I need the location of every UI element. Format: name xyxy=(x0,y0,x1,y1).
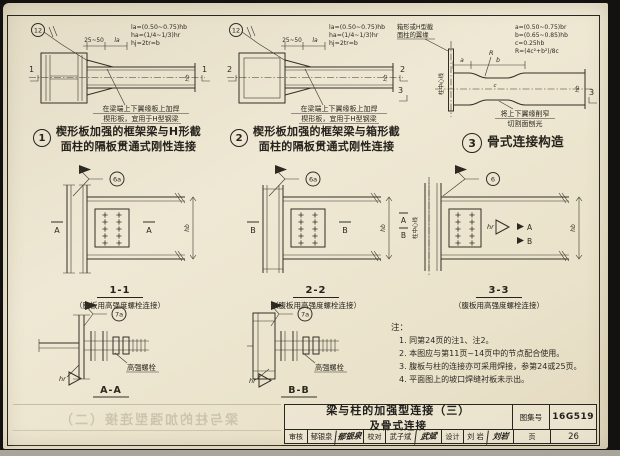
note-line-2: 切割面刨光 xyxy=(508,119,543,128)
cut-mark-a: A xyxy=(527,223,533,232)
formula-3: hj=2tr=b xyxy=(131,40,160,47)
flange-label-2: 面柱的翼缘 xyxy=(397,30,429,39)
formulas: la=(0.50~0.75)hb ha=(1/4~1/3)hr hj=2tr=b xyxy=(131,24,187,47)
web-splice-plate xyxy=(95,209,129,247)
note-line-1: 在梁端上下翼缘板上加焊 xyxy=(103,104,180,113)
flange-label-1: 箱形或H型截 xyxy=(397,22,434,31)
scanned-page: 12 25~50 la la=(0.50~0.75)hb ha=(1/4~1/3… xyxy=(3,3,608,449)
site-weld-flag: 7a xyxy=(271,301,312,326)
proofreader-name: 武子斌 xyxy=(385,430,415,444)
formulas: la=(0.50~0.75)hb ha=(1/4~1/3)hr hj=2tr=b xyxy=(329,24,385,47)
section-title: 3-3 xyxy=(476,285,521,298)
beam-depth-label: hb xyxy=(380,224,387,232)
photo-background-strip xyxy=(0,450,620,456)
weld-ref-label: 6 xyxy=(491,176,495,184)
note-line-2: 楔形板，宜用于H型钢梁 xyxy=(301,114,376,123)
dim-a: a xyxy=(460,57,464,64)
note-callout: 在梁端上下翼缘板上加焊 楔形板，宜用于H型钢梁 xyxy=(93,69,189,124)
sheet-title: 梁与柱的加强型连接（三） 及骨式连接 xyxy=(285,405,512,429)
cut-mark-b: B xyxy=(527,237,532,246)
beam-depth-label: hb xyxy=(185,74,191,81)
bolt-callout: 高强螺栓 xyxy=(303,353,347,372)
caption-detail-1: 1 楔形板加强的框架梁与H形截 面柱的隔板贯通式刚性连接 xyxy=(17,125,217,155)
box-column-wall-section xyxy=(247,313,275,379)
cut-mark-left: B xyxy=(250,226,256,235)
formula-1: la=(0.50~0.75)hb xyxy=(131,24,187,31)
beam-web-section xyxy=(39,315,90,379)
dim-25-50: 25~50 xyxy=(282,38,302,44)
caption-line-1: 楔形板加强的框架梁与箱形截 xyxy=(253,125,400,140)
section-title: 2-2 xyxy=(293,285,338,298)
section-mark-right: 1 xyxy=(202,65,207,74)
detail-number-badge: 3 xyxy=(462,133,482,153)
weld-ref-label: 6a xyxy=(309,176,317,184)
cut-mark-b: B xyxy=(401,231,406,240)
reviewer-name: 郁银泉 xyxy=(307,430,335,444)
hr-arrow-callout: hr xyxy=(249,369,271,387)
column-flange-callout: 箱形或H型截 面柱的翼缘 xyxy=(397,22,448,51)
section-mark-left: 1 xyxy=(29,65,34,74)
bolt-assembly xyxy=(84,331,149,361)
detail-number-badge: 1 xyxy=(33,129,51,147)
detail-2-drawing: 12 25~50 la la=(0.50~0.75)hb ha=(1/4~1/3… xyxy=(225,19,411,125)
beam-depth-label: hb xyxy=(575,85,581,92)
caption-line-2: 面柱的隔板贯通式刚性连接 xyxy=(56,140,201,155)
detail-1-drawing: 12 25~50 la la=(0.50~0.75)hb ha=(1/4~1/3… xyxy=(27,19,213,125)
caption-line-1: 骨式连接构造 xyxy=(487,133,564,151)
formula-2: ha=(1/4~1/3)hr xyxy=(131,32,181,39)
detail-a-a-drawing: 7a 高强螺栓 hr xyxy=(27,299,207,401)
note-line-1: 在梁端上下翼缘板上加焊 xyxy=(301,104,378,113)
column-axis-label: 柱中心线 xyxy=(437,72,445,95)
weld-ref-label: 6a xyxy=(113,176,121,184)
beam-depth-label: hb xyxy=(383,74,389,81)
formula-2: b=(0.65~0.85)hb xyxy=(515,32,568,39)
section-subtitle: （腹板用高强度螺栓连接） xyxy=(399,300,599,311)
dim-c: c xyxy=(493,83,496,89)
caption-detail-2: 2 楔形板加强的框架梁与箱形截 面柱的隔板贯通式刚性连接 xyxy=(215,125,415,155)
section-title: 1-1 xyxy=(97,285,142,298)
reviewer-label: 审核 xyxy=(285,430,307,444)
bolt-label: 高强螺栓 xyxy=(315,363,344,372)
bolt-label: 高强螺栓 xyxy=(127,363,156,372)
formula-1: la=(0.50~0.75)hb xyxy=(329,24,385,31)
weld-ref-label: 12 xyxy=(34,27,42,35)
beam-flanges xyxy=(87,193,185,261)
depth-dimension: hb xyxy=(570,197,582,259)
title-block: 梁与柱的加强型连接（三） 及骨式连接 图集号 16G519 审核 郁银泉 郁银泉… xyxy=(284,404,597,444)
site-weld-flag: 6a xyxy=(73,165,124,196)
detail-title: B-B xyxy=(288,385,309,396)
note-callout: 在梁端上下翼缘板上加焊 楔形板，宜用于H型钢梁 xyxy=(291,69,387,124)
dimension-line: 25~50 la xyxy=(281,37,325,50)
radius-label: R xyxy=(489,49,494,57)
beam-flanges xyxy=(283,193,381,261)
column-flange xyxy=(425,183,441,271)
weld-ref-label: 7a xyxy=(115,311,123,319)
cut-mark-a: A xyxy=(401,216,407,225)
section-mark-left: 2 xyxy=(227,65,232,74)
formula-4: R=(4c²+b²)/8c xyxy=(515,48,559,55)
radius-callout: R xyxy=(485,49,494,76)
detail-b-b-drawing: 7a 高强螺栓 hr B- xyxy=(209,299,389,401)
atlas-number-value: 16G519 xyxy=(549,405,596,429)
hr-label: hr xyxy=(487,223,495,231)
designer-name: 刘 岩 xyxy=(463,430,487,444)
section-1-1-drawing: 6a A A xyxy=(27,163,213,277)
note-item-4: 4. 平面图上的坡口焊缝衬板未示出。 xyxy=(391,374,615,387)
hr-arrow-callout: hr xyxy=(487,220,509,234)
beam xyxy=(87,60,195,95)
site-weld-flag: 6 xyxy=(443,165,500,196)
cut-mark-right: B xyxy=(342,226,348,235)
proofreader-label: 校对 xyxy=(363,430,385,444)
weld-ref-symbol: 12 xyxy=(32,24,89,62)
beam-depth-label: hb xyxy=(184,224,191,232)
depth-dimension: hb xyxy=(184,197,196,259)
formula-2: ha=(1/4~1/3)hr xyxy=(329,32,379,39)
h-column-plan xyxy=(41,53,87,103)
dimension-line: 25~50 la xyxy=(83,37,127,50)
column-flanges xyxy=(63,185,91,273)
site-weld-flag: 6a xyxy=(269,165,320,196)
page-number: 26 xyxy=(550,430,596,444)
detail-title: A-A xyxy=(100,385,122,396)
weld-ref-label: 12 xyxy=(232,27,240,35)
hr-arrow-callout: hr xyxy=(59,365,81,385)
site-weld-flag: 7a xyxy=(84,301,126,326)
formula-3: hj=2tr=b xyxy=(329,40,358,47)
section-3-3-drawing: A B 柱中心线 6 xyxy=(399,163,599,277)
beam-flanges xyxy=(441,193,569,261)
reviewer-signature: 郁银泉 xyxy=(334,429,364,444)
beam xyxy=(285,60,393,95)
note-item-3: 3. 腹板与柱的连接亦可采用焊接，参第24或25页。 xyxy=(391,361,615,374)
section-3-3-caption: 3-3 （腹板用高强度螺栓连接） xyxy=(399,278,599,311)
note-line-2: 楔形板，宜用于H型钢梁 xyxy=(103,114,178,123)
notes-heading: 注： xyxy=(391,321,615,333)
cut-marks-inner: A B xyxy=(517,223,533,246)
section-2-2-drawing: 6a B B xyxy=(223,163,409,277)
note-item-2: 2. 本图应与第11页~14页中的节点配合使用。 xyxy=(391,348,615,361)
formula-3: c=0.25hb xyxy=(515,40,544,47)
dim-25-50: 25~50 xyxy=(84,38,104,44)
dim-la: la xyxy=(114,37,120,44)
weld-ref-label: 7a xyxy=(301,311,309,319)
cut-mark-right: A xyxy=(146,226,152,235)
dim-la: la xyxy=(312,37,318,44)
column-axis-label: 柱中心线 xyxy=(411,216,419,239)
atlas-number-label: 图集号 xyxy=(512,405,550,429)
formula-1: a=(0.50~0.75)br xyxy=(515,24,567,31)
note-line-1: 将上下翼缘削窄 xyxy=(501,109,550,118)
note-item-1: 1. 同第24页的注1、注2。 xyxy=(391,335,615,348)
proofreader-signature: 武斌 xyxy=(414,429,442,444)
hr-label: hr xyxy=(59,375,67,383)
cut-marks-left: A B xyxy=(399,213,408,240)
cut-mark-left: A xyxy=(54,226,60,235)
page-label: 页 xyxy=(513,430,550,444)
sheet-title-line-1: 梁与柱的加强型连接（三） xyxy=(326,402,470,418)
caption-detail-3: 3 骨式连接构造 xyxy=(423,133,603,153)
detail-number-badge: 2 xyxy=(230,129,248,147)
rbs-beam: c xyxy=(435,69,593,109)
designer-label: 设计 xyxy=(441,430,463,444)
caption-line-2: 面柱的隔板贯通式刚性连接 xyxy=(253,140,400,155)
beam-depth-label: hb xyxy=(570,224,577,232)
box-column-walls xyxy=(263,185,283,273)
notes-block: 注： 1. 同第24页的注1、注2。 2. 本图应与第11页~14页中的节点配合… xyxy=(391,321,615,387)
weld-ref-symbol: 12 xyxy=(230,24,287,62)
detail-3-drawing: 箱形或H型截 面柱的翼缘 柱中心线 a b R a=(0.50~0.75)br … xyxy=(395,17,599,129)
depth-dimension: hb xyxy=(380,197,392,259)
formulas: a=(0.50~0.75)br b=(0.65~0.85)hb c=0.25hb… xyxy=(515,24,568,55)
caption-line-1: 楔形板加强的框架梁与H形截 xyxy=(56,125,201,140)
box-column-plan xyxy=(239,53,285,103)
web-splice-plate xyxy=(291,209,325,247)
section-mark-right: 3 xyxy=(589,88,594,97)
section-mark-left: 3 xyxy=(398,86,403,95)
designer-signature: 刘岩 xyxy=(486,429,514,444)
bolt-callout: 高强螺栓 xyxy=(115,353,159,372)
dim-b: b xyxy=(496,57,500,64)
web-splice-plate xyxy=(449,209,481,247)
hr-label: hr xyxy=(249,377,257,385)
